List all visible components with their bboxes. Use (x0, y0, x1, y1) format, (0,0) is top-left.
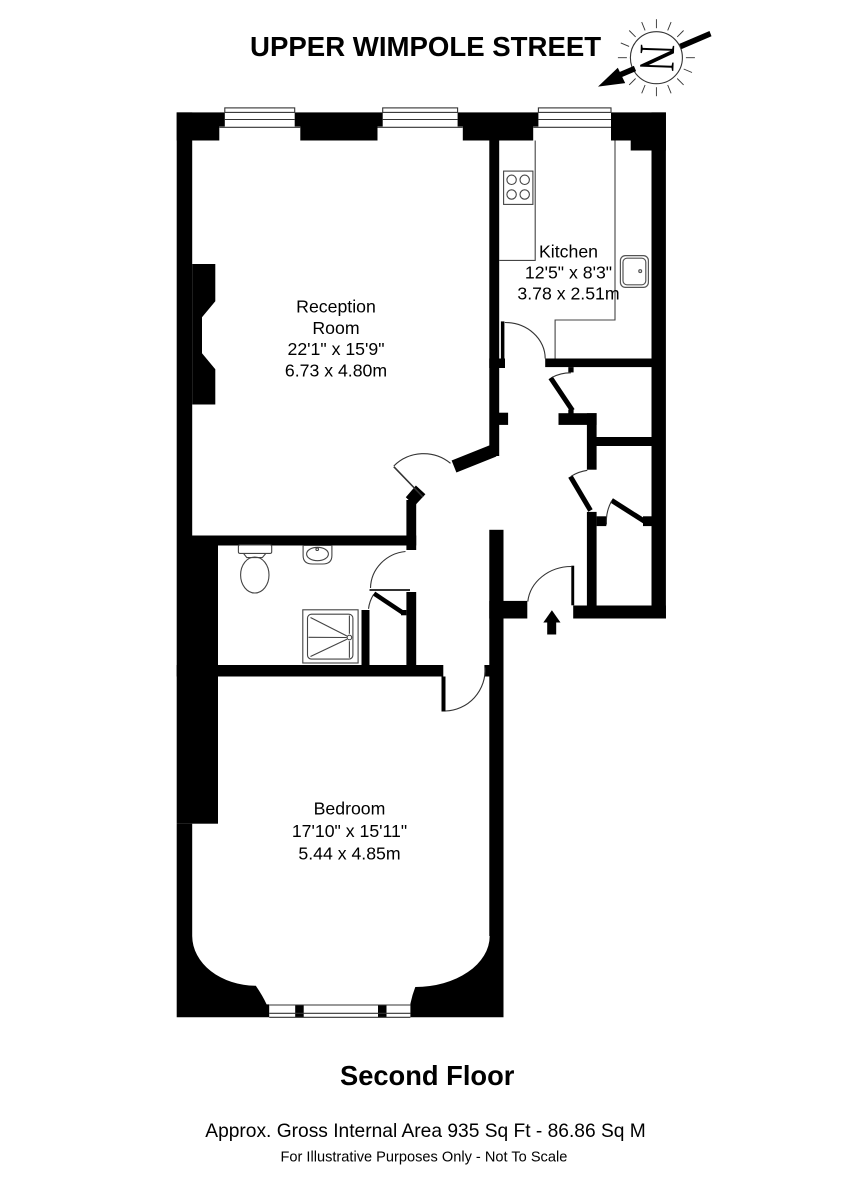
svg-text:22'1" x 15'9": 22'1" x 15'9" (287, 339, 384, 359)
svg-text:3.78 x 2.51m: 3.78 x 2.51m (517, 284, 619, 304)
svg-text:Second Floor: Second Floor (340, 1060, 515, 1091)
svg-text:For Illustrative Purposes Only: For Illustrative Purposes Only - Not To … (280, 1150, 567, 1166)
svg-text:17'10" x 15'11": 17'10" x 15'11" (292, 821, 407, 841)
svg-text:N: N (628, 43, 685, 72)
svg-text:5.44 x 4.85m: 5.44 x 4.85m (298, 844, 400, 864)
svg-text:Kitchen: Kitchen (539, 242, 598, 262)
svg-text:6.73 x 4.80m: 6.73 x 4.80m (285, 360, 387, 380)
svg-text:Bedroom: Bedroom (314, 799, 386, 819)
svg-text:Approx. Gross Internal Area 93: Approx. Gross Internal Area 935 Sq Ft - … (205, 1121, 645, 1142)
svg-text:Reception: Reception (296, 297, 376, 317)
svg-text:Room: Room (312, 318, 359, 338)
svg-text:12'5" x 8'3": 12'5" x 8'3" (525, 263, 612, 283)
svg-text:UPPER WIMPOLE STREET: UPPER WIMPOLE STREET (250, 31, 601, 62)
